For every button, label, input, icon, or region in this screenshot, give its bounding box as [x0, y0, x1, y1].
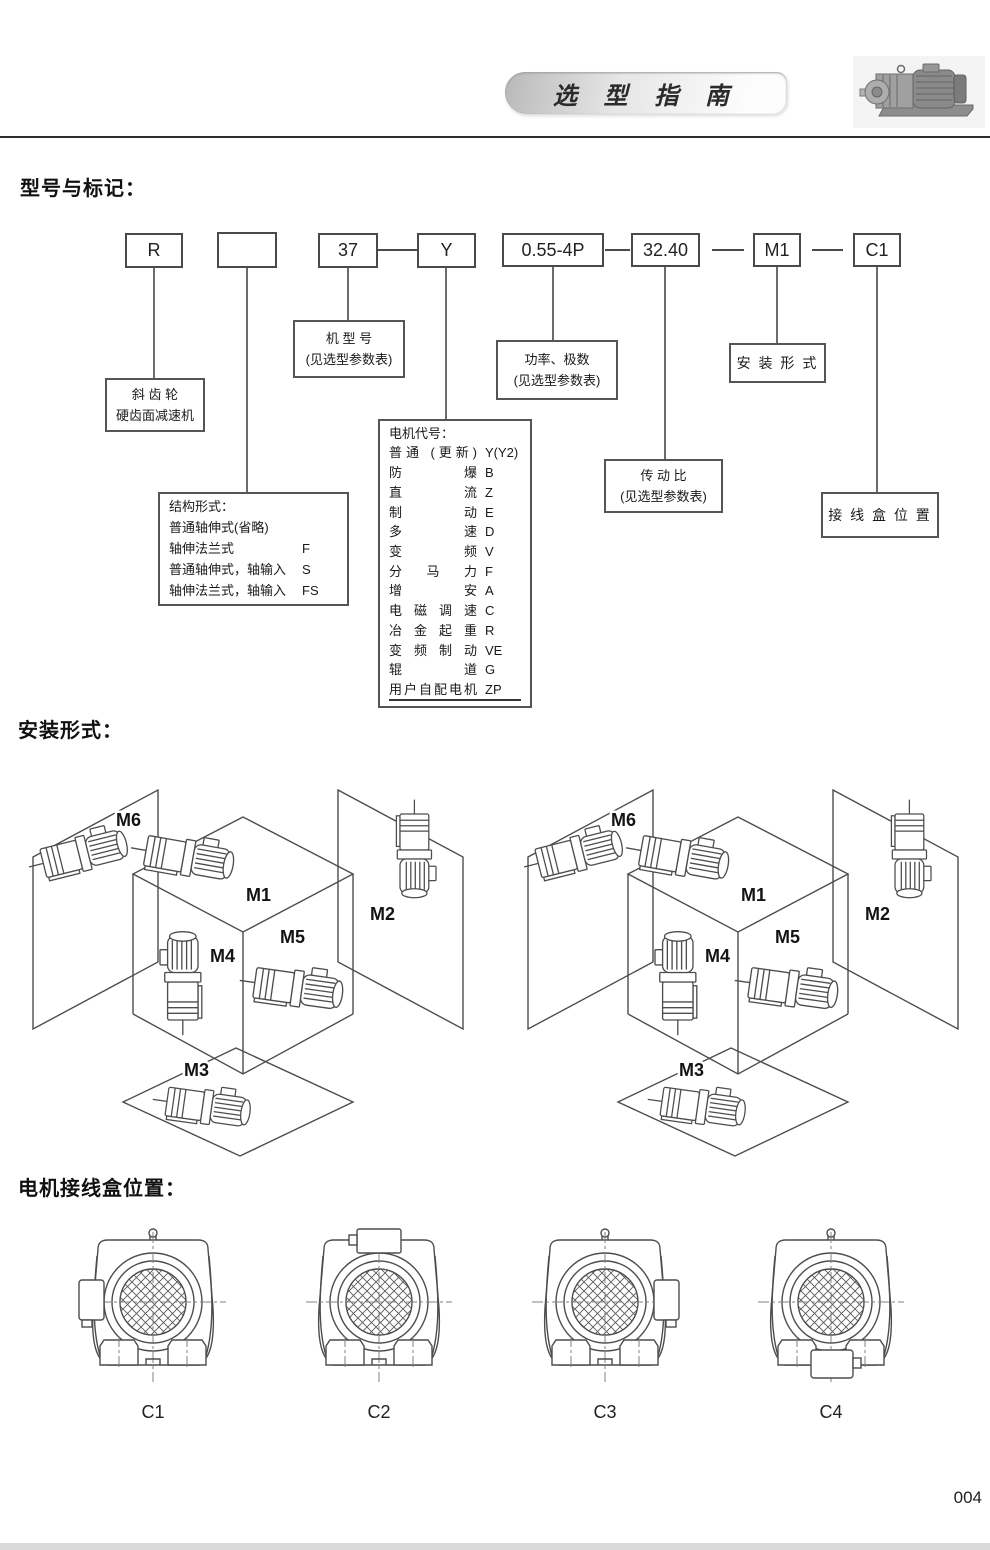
structure-row: 普通轴伸式，轴输入S	[169, 563, 338, 578]
structure-label: 普通轴伸式，轴输入	[169, 563, 286, 578]
motor-code-row: 分马力F	[389, 565, 521, 580]
callout-structure-forms: 结构形式： 普通轴伸式(省略)轴伸法兰式F普通轴伸式，轴输入S轴伸法兰式，轴输入…	[158, 492, 349, 606]
callout-model-no: 机 型 号 (见选型参数表)	[293, 320, 405, 378]
motor-code-label: 冶金起重	[389, 624, 477, 639]
code-box-ratio: 32.40	[631, 233, 700, 267]
motor-code-code: D	[477, 525, 521, 540]
mounting-label-m3: M3	[184, 1060, 209, 1080]
motor-code-label: 多速	[389, 525, 477, 540]
motor-code-code: G	[477, 663, 521, 678]
mounting-label-m6: M6	[611, 810, 636, 830]
motor-code-code: Z	[477, 486, 521, 501]
mounting-diagram-left: M6 M1 M2 M4 M5 M3	[8, 762, 488, 1157]
footer-bar	[0, 1543, 990, 1550]
code-box-structure	[217, 232, 277, 268]
motor-rear-view	[304, 1228, 454, 1386]
motor-code-label: 制动	[389, 506, 477, 521]
motor-code-row: 变频制动VE	[389, 644, 521, 659]
callout-motor-codes: 电机代号： 普通 (更新)Y(Y2)防爆B直流Z制动E多速D变频V分马力F增安A…	[378, 419, 532, 708]
mounting-label-m1: M1	[246, 885, 271, 905]
structure-label: 普通轴伸式(省略)	[169, 521, 269, 536]
callout-ratio: 传 动 比 (见选型参数表)	[604, 459, 723, 513]
motor-code-code: B	[477, 466, 521, 481]
connector-line	[812, 249, 843, 251]
motor-code-label: 电磁调速	[389, 604, 477, 619]
structure-code: S	[294, 563, 338, 578]
connector-line	[712, 249, 744, 251]
motor-code-code: R	[477, 624, 521, 639]
motor-code-label: 用户自配电机	[389, 683, 477, 698]
motor-code-row: 多速D	[389, 525, 521, 540]
structure-label: 轴伸法兰式，轴输入	[169, 584, 286, 599]
junction-label: C3	[593, 1402, 616, 1423]
gearmotor-photo	[853, 56, 985, 128]
connector-line	[605, 249, 630, 251]
junction-cell-c3: C3	[492, 1228, 718, 1423]
motor-code-title: 电机代号：	[389, 426, 521, 442]
code-box-power-poles: 0.55-4P	[502, 233, 604, 267]
structure-code: F	[294, 542, 338, 557]
motor-code-code: ZP	[477, 683, 521, 698]
motor-code-row: 普通 (更新)Y(Y2)	[389, 446, 521, 461]
motor-code-row: 制动E	[389, 506, 521, 521]
mounting-label-m1: M1	[741, 885, 766, 905]
motor-code-row: 变频V	[389, 545, 521, 560]
callout-power-line2: (见选型参数表)	[514, 370, 601, 391]
motor-rear-view	[530, 1228, 680, 1386]
motor-code-label: 变频	[389, 545, 477, 560]
junction-cell-c4: C4	[718, 1228, 944, 1423]
motor-code-row: 电磁调速C	[389, 604, 521, 619]
callout-ratio-line1: 传 动 比	[640, 465, 686, 486]
callout-reducer-line1: 斜 齿 轮	[132, 384, 178, 405]
connector-line	[153, 268, 155, 378]
header-divider	[0, 136, 990, 138]
callout-model-no-line2: (见选型参数表)	[306, 349, 393, 370]
callout-ratio-line2: (见选型参数表)	[620, 486, 707, 507]
structure-row: 轴伸法兰式，轴输入FS	[169, 584, 338, 599]
junction-box-top	[349, 1229, 401, 1253]
code-box-jbox: C1	[853, 233, 901, 267]
junction-box-bottom	[811, 1350, 861, 1378]
code-box-frame-size: 37	[318, 233, 378, 268]
connector-line	[776, 267, 778, 343]
page-number: 004	[954, 1488, 982, 1508]
motor-code-code: Y(Y2)	[477, 446, 521, 461]
motor-code-row: 增安A	[389, 584, 521, 599]
callout-reducer-type: 斜 齿 轮 硬齿面减速机	[105, 378, 205, 432]
motor-code-label: 变频制动	[389, 644, 477, 659]
junction-label: C1	[141, 1402, 164, 1423]
callout-mounting-form: 安 装 形 式	[729, 343, 826, 383]
motor-code-label: 分马力	[389, 565, 477, 580]
motor-code-label: 辊道	[389, 663, 477, 678]
motor-rear-view	[756, 1228, 906, 1386]
mounting-label-m5: M5	[775, 927, 800, 947]
structure-title: 结构形式：	[169, 499, 338, 515]
mounting-label-m2: M2	[865, 904, 890, 924]
motor-code-row: 冶金起重R	[389, 624, 521, 639]
motor-code-label: 防爆	[389, 466, 477, 481]
mounting-diagram-right: M6 M1 M2 M4 M5 M3	[503, 762, 983, 1157]
connector-line	[378, 249, 417, 251]
mounting-label-m4: M4	[210, 946, 235, 966]
section-title-model-marking: 型号与标记：	[20, 172, 146, 201]
junction-box-right	[654, 1280, 679, 1327]
callout-power-line1: 功率、极数	[524, 349, 589, 370]
callout-power-poles: 功率、极数 (见选型参数表)	[496, 340, 618, 400]
connector-line	[445, 268, 447, 419]
junction-box-left	[79, 1280, 104, 1327]
section-title-mounting: 安装形式：	[18, 714, 123, 743]
structure-code: FS	[294, 584, 338, 599]
junction-cell-c1: C1	[40, 1228, 266, 1423]
mounting-label-m6: M6	[116, 810, 141, 830]
structure-row: 轴伸法兰式F	[169, 542, 338, 557]
connector-line	[246, 268, 248, 492]
motor-code-code: E	[477, 506, 521, 521]
motor-code-label: 直流	[389, 486, 477, 501]
junction-label: C2	[367, 1402, 390, 1423]
connector-line	[552, 267, 554, 340]
connector-line	[876, 267, 878, 492]
motor-code-code: A	[477, 584, 521, 599]
header-banner: 选 型 指 南	[505, 72, 787, 114]
code-box-mounting: M1	[753, 233, 801, 267]
motor-code-code: V	[477, 545, 521, 560]
mounting-label-m4: M4	[705, 946, 730, 966]
structure-row: 普通轴伸式(省略)	[169, 521, 338, 536]
motor-code-code: VE	[477, 644, 521, 659]
motor-code-row: 辊道G	[389, 663, 521, 678]
code-box-series: R	[125, 233, 183, 268]
connector-line	[347, 268, 349, 320]
motor-code-row: 直流Z	[389, 486, 521, 501]
junction-label: C4	[819, 1402, 842, 1423]
code-box-motor-code: Y	[417, 233, 476, 268]
callout-jbox-position: 接 线 盒 位 置	[821, 492, 939, 538]
header-title: 选 型 指 南	[553, 76, 739, 111]
section-title-junction: 电机接线盒位置：	[18, 1172, 186, 1201]
mounting-label-m3: M3	[679, 1060, 704, 1080]
motor-code-label: 增安	[389, 584, 477, 599]
structure-label: 轴伸法兰式	[169, 542, 234, 557]
motor-code-row: 防爆B	[389, 466, 521, 481]
junction-box-row: C1 C2	[40, 1228, 945, 1423]
motor-rear-view	[78, 1228, 228, 1386]
mounting-label-m2: M2	[370, 904, 395, 924]
motor-code-row: 用户自配电机ZP	[389, 683, 521, 701]
callout-reducer-line2: 硬齿面减速机	[116, 405, 194, 426]
motor-code-code: C	[477, 604, 521, 619]
motor-code-code: F	[477, 565, 521, 580]
mounting-label-m5: M5	[280, 927, 305, 947]
page: 选 型 指 南 型号与标记： R 37 Y 0.55-4P 32.40 M1 C…	[0, 0, 990, 1550]
junction-cell-c2: C2	[266, 1228, 492, 1423]
callout-model-no-line1: 机 型 号	[326, 328, 372, 349]
connector-line	[664, 267, 666, 459]
motor-code-label: 普通 (更新)	[389, 446, 477, 461]
